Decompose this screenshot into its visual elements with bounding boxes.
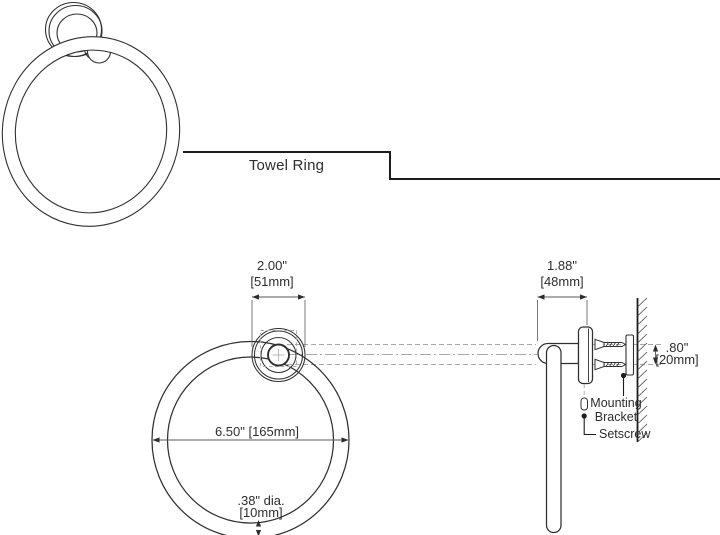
mounting-bracket-label-line2: Bracket [576,410,656,424]
side-flange [579,327,593,384]
front-tube-mm: [10mm] [211,506,311,521]
page-title: Towel Ring [183,158,390,175]
front-diameter-value: 6.50" [165mm] [157,425,357,440]
side-depth-inches: 1.88" [512,259,612,274]
side-depth-mm: [48mm] [512,275,612,290]
side-mounting-bracket [626,335,634,375]
side-bracket-mm: [20mm] [647,353,707,368]
screw-icon [595,339,626,369]
setscrew-label: Setscrew [599,427,650,441]
mounting-bracket-label-line1: Mounting [576,396,656,410]
spec-sheet: Towel Ring 2.00" [51mm] 6.50" [165mm] .3… [0,0,720,535]
projection-lines [287,345,662,398]
technical-drawing [0,0,720,535]
perspective-view [0,3,193,240]
side-ring-tube [547,346,562,533]
front-width-inches: 2.00" [222,259,322,274]
front-width-mm: [51mm] [222,275,322,290]
mounting-bracket-callout [621,373,626,396]
